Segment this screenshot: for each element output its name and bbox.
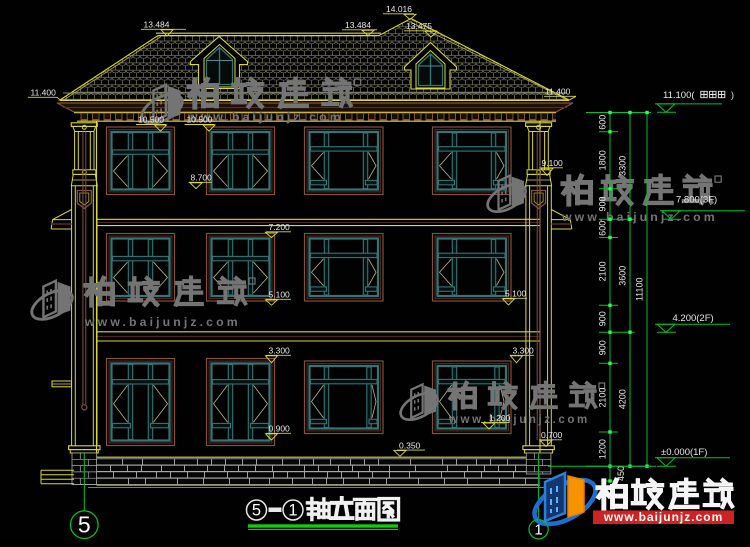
svg-text:3600: 3600 (618, 266, 628, 286)
svg-text:9.100: 9.100 (542, 158, 564, 168)
svg-text:7.200: 7.200 (269, 222, 291, 232)
svg-text:www.baijunjz.com: www.baijunjz.com (603, 510, 724, 524)
svg-text:1: 1 (288, 502, 297, 520)
svg-text:11.400: 11.400 (31, 88, 57, 98)
svg-text:13.475: 13.475 (406, 21, 432, 31)
svg-text:1.200: 1.200 (489, 413, 511, 423)
svg-text:10.500: 10.500 (187, 115, 213, 125)
svg-text:13.484: 13.484 (144, 20, 170, 30)
svg-text:1: 1 (534, 522, 542, 539)
svg-text:900: 900 (598, 340, 608, 355)
svg-text:2100: 2100 (598, 261, 608, 281)
svg-text:11.100(: 11.100( (663, 90, 695, 101)
svg-text:7.800(3F): 7.800(3F) (676, 195, 717, 206)
svg-text:0.350: 0.350 (399, 440, 421, 450)
svg-text:11100: 11100 (635, 277, 645, 301)
svg-text:www.baijunjz.com: www.baijunjz.com (561, 210, 718, 224)
svg-text:11.400: 11.400 (545, 87, 571, 97)
svg-text:900: 900 (598, 311, 608, 326)
svg-text:10.500: 10.500 (138, 115, 164, 125)
svg-text:1800: 1800 (598, 150, 608, 170)
svg-text:4.200(2F): 4.200(2F) (673, 313, 714, 324)
svg-text:www.baijunjz.com: www.baijunjz.com (448, 414, 590, 426)
svg-text:1200: 1200 (598, 439, 608, 459)
svg-text:www.baijunjz.com: www.baijunjz.com (84, 315, 241, 329)
svg-text:5.100: 5.100 (505, 289, 527, 299)
svg-text:): ) (731, 90, 734, 100)
svg-text:0.700: 0.700 (541, 430, 563, 440)
svg-text:3.300: 3.300 (513, 346, 535, 356)
svg-text:3.300: 3.300 (269, 346, 291, 356)
svg-text:900: 900 (598, 196, 608, 211)
svg-text:5.100: 5.100 (269, 290, 291, 300)
svg-text:0.900: 0.900 (269, 424, 291, 434)
svg-text:8.700: 8.700 (191, 173, 213, 183)
svg-text:14.016: 14.016 (386, 4, 412, 14)
svg-text:3300: 3300 (618, 156, 628, 176)
svg-text:600: 600 (598, 221, 608, 236)
svg-text:4200: 4200 (618, 389, 628, 409)
svg-text:5: 5 (78, 512, 91, 538)
svg-text:13.484: 13.484 (345, 20, 371, 30)
svg-text:±0.000(1F): ±0.000(1F) (661, 447, 707, 458)
svg-text:5: 5 (252, 502, 261, 520)
svg-text:2100: 2100 (598, 388, 608, 408)
svg-text:600: 600 (598, 115, 608, 130)
